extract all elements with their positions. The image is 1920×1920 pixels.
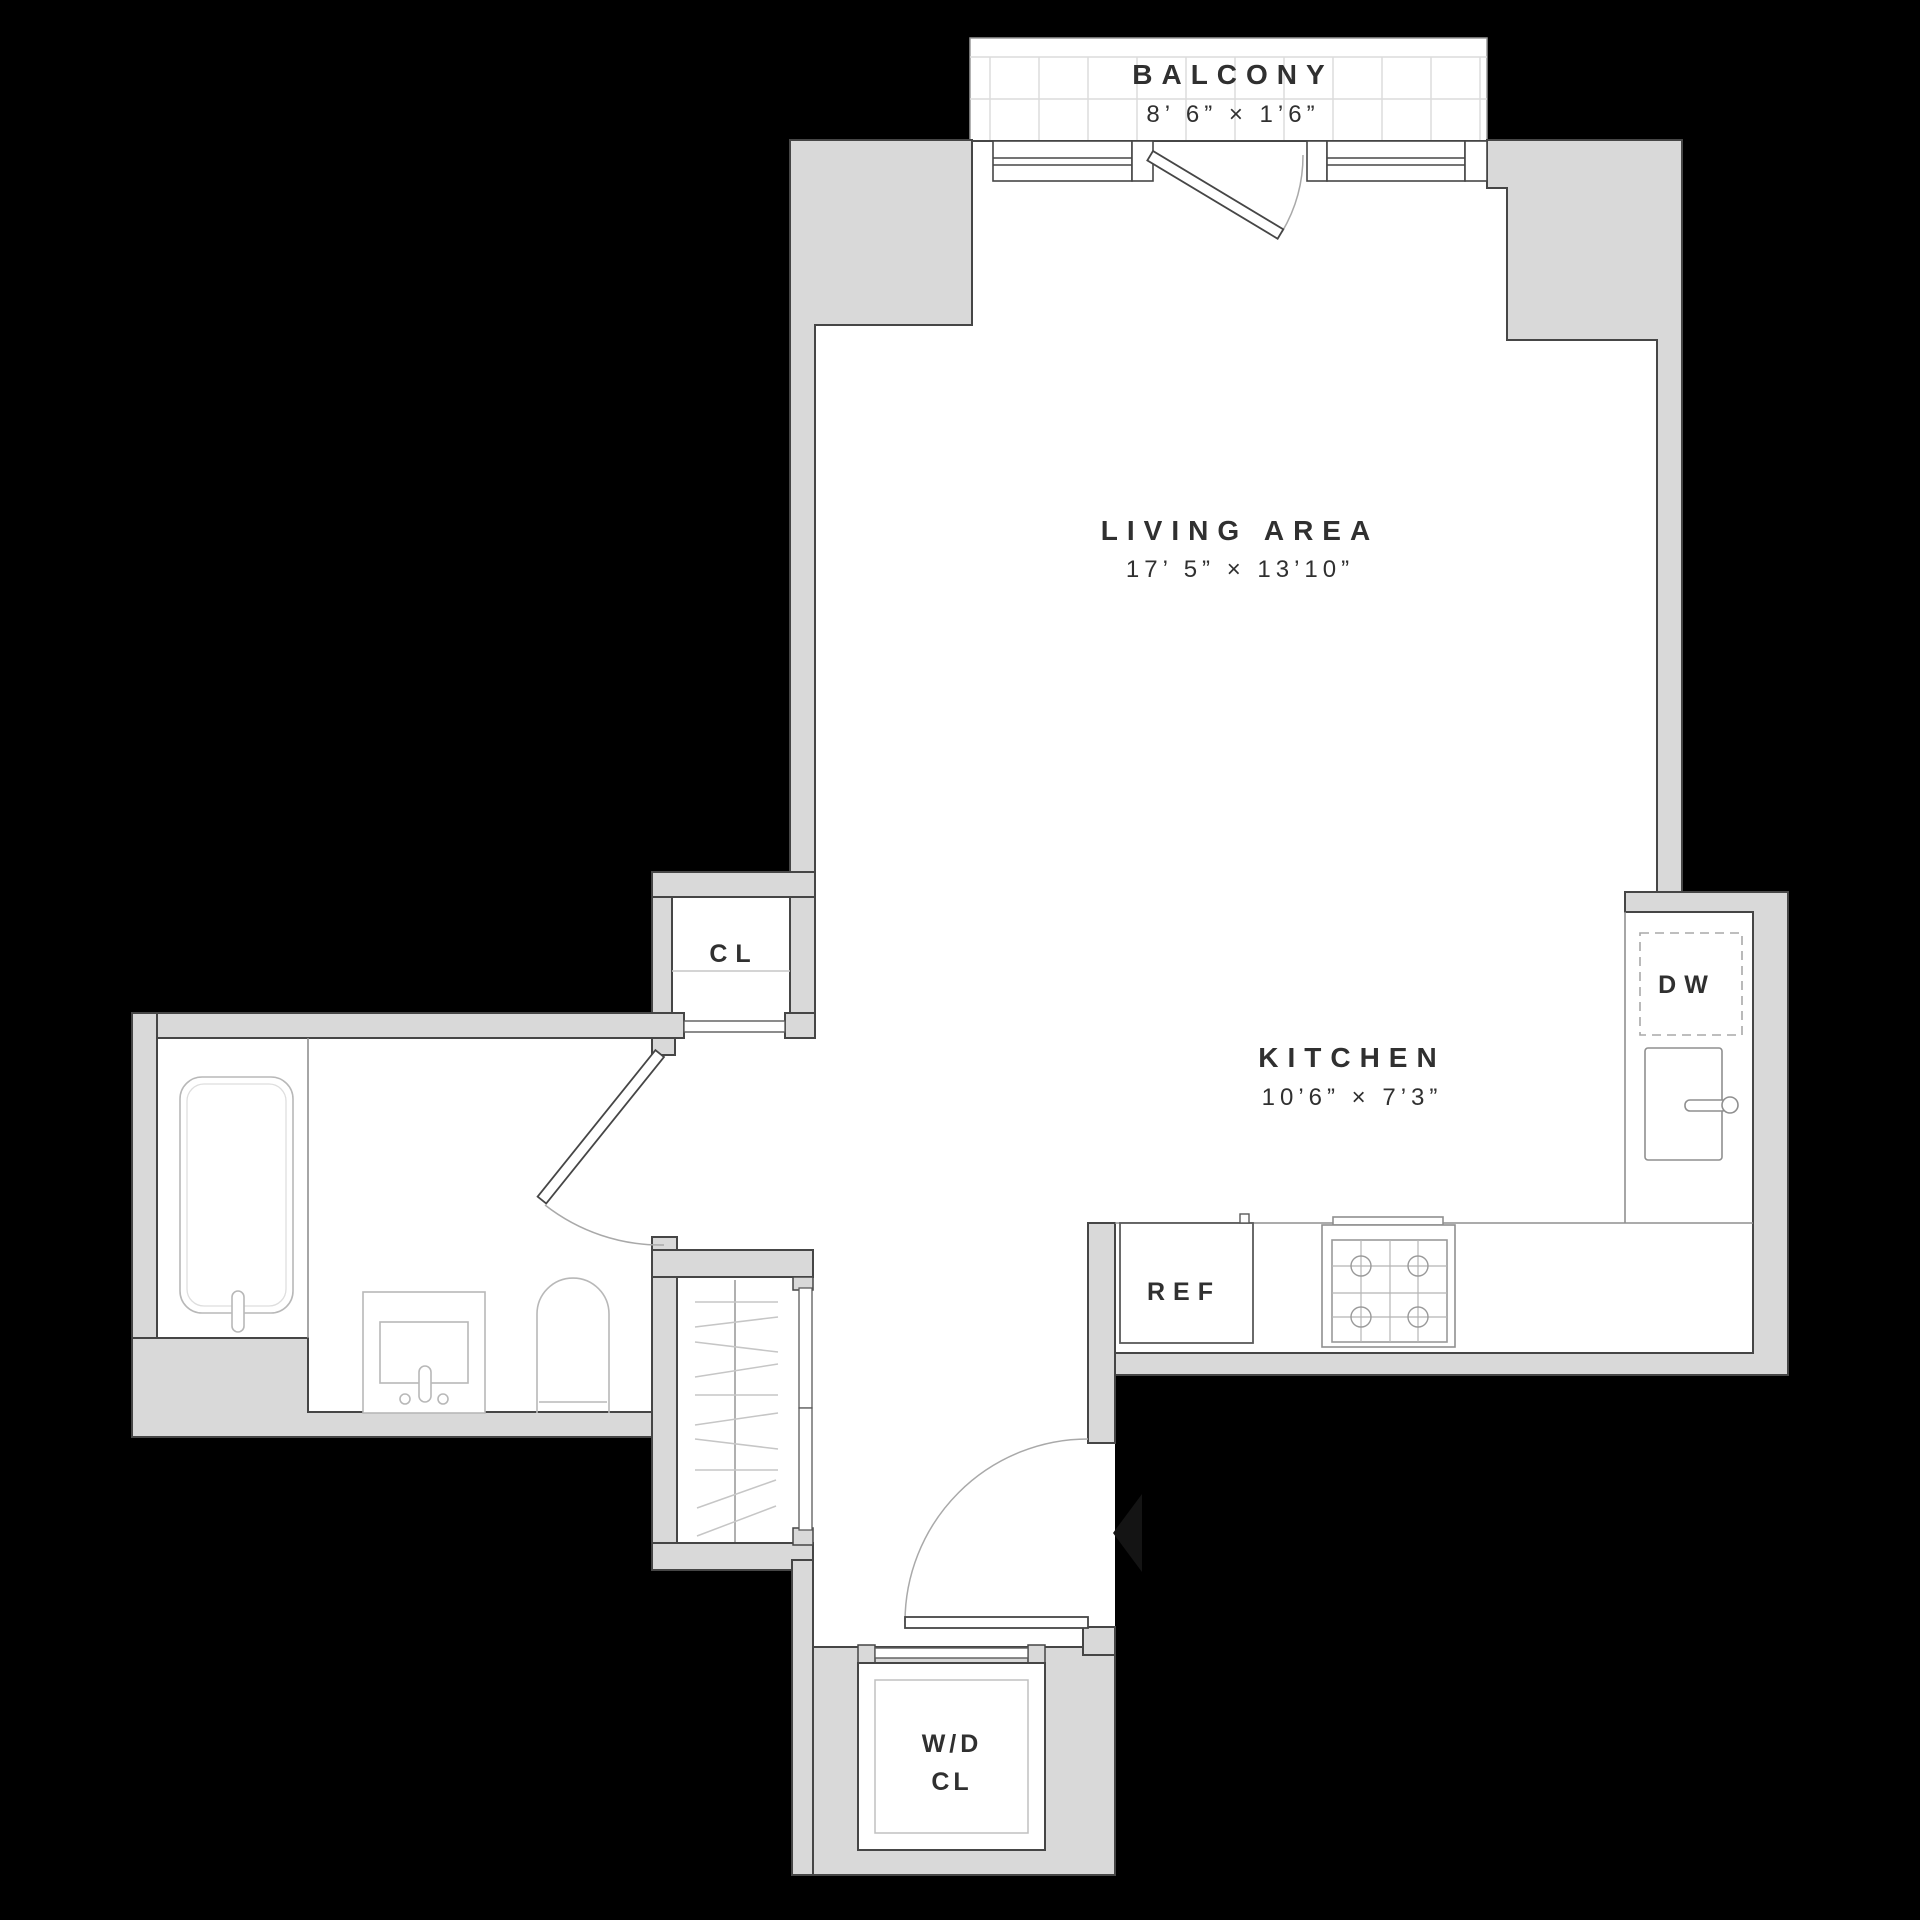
sliding-door bbox=[799, 1288, 812, 1530]
stove bbox=[1322, 1217, 1455, 1347]
closet-label: CL bbox=[709, 940, 758, 968]
living-area-label: LIVING AREA bbox=[1101, 515, 1379, 546]
kitchen-dims: 10’6” × 7’3” bbox=[1262, 1084, 1443, 1111]
refrigerator: REF bbox=[1120, 1214, 1253, 1343]
refrigerator-label: REF bbox=[1147, 1278, 1221, 1306]
balcony-dims: 8’ 6” × 1’6” bbox=[1146, 101, 1319, 128]
wd-label-line2: CL bbox=[931, 1768, 972, 1796]
kitchen-label: KITCHEN bbox=[1258, 1042, 1445, 1073]
balcony: BALCONY 8’ 6” × 1’6” bbox=[970, 38, 1487, 141]
window-right bbox=[1327, 141, 1465, 181]
closet-door-threshold bbox=[684, 1021, 785, 1032]
window-left bbox=[993, 141, 1132, 181]
wd-door-threshold bbox=[875, 1648, 1028, 1658]
floor-plan: BALCONY 8’ 6” × 1’6” bbox=[0, 0, 1920, 1920]
wall-hallcloset-top bbox=[652, 1250, 813, 1277]
wall-cl-top bbox=[652, 872, 815, 897]
wall-cl-right bbox=[790, 897, 815, 1013]
wall-bottom-arm bbox=[792, 1560, 813, 1875]
wd-closet: W/D CL bbox=[858, 1645, 1045, 1850]
wall-bathroom-top bbox=[132, 1013, 684, 1038]
wall-cl-left bbox=[652, 897, 672, 1013]
wall-hallcloset-bottom bbox=[652, 1543, 813, 1570]
wall-entry-lower bbox=[1083, 1627, 1115, 1655]
wd-label-line1: W/D bbox=[922, 1730, 983, 1758]
bathtub bbox=[180, 1077, 293, 1332]
wall-bathroom-east bbox=[652, 1237, 677, 1570]
balcony-label: BALCONY bbox=[1132, 59, 1333, 90]
wall-cl-post-right bbox=[785, 1013, 815, 1038]
entry-door bbox=[905, 1617, 1088, 1628]
vanity-sink bbox=[363, 1292, 485, 1413]
living-area-dims: 17’ 5” × 13’10” bbox=[1126, 556, 1354, 583]
dishwasher-label: DW bbox=[1658, 971, 1716, 999]
window-end-jamb bbox=[1465, 141, 1487, 181]
unit-floor bbox=[132, 140, 1788, 1875]
wall-kitchen-west bbox=[1088, 1223, 1115, 1443]
window-mullion-right bbox=[1307, 141, 1327, 181]
entry-arrow-icon bbox=[1113, 1494, 1142, 1572]
floor-plan-canvas: BALCONY 8’ 6” × 1’6” bbox=[0, 0, 1920, 1920]
